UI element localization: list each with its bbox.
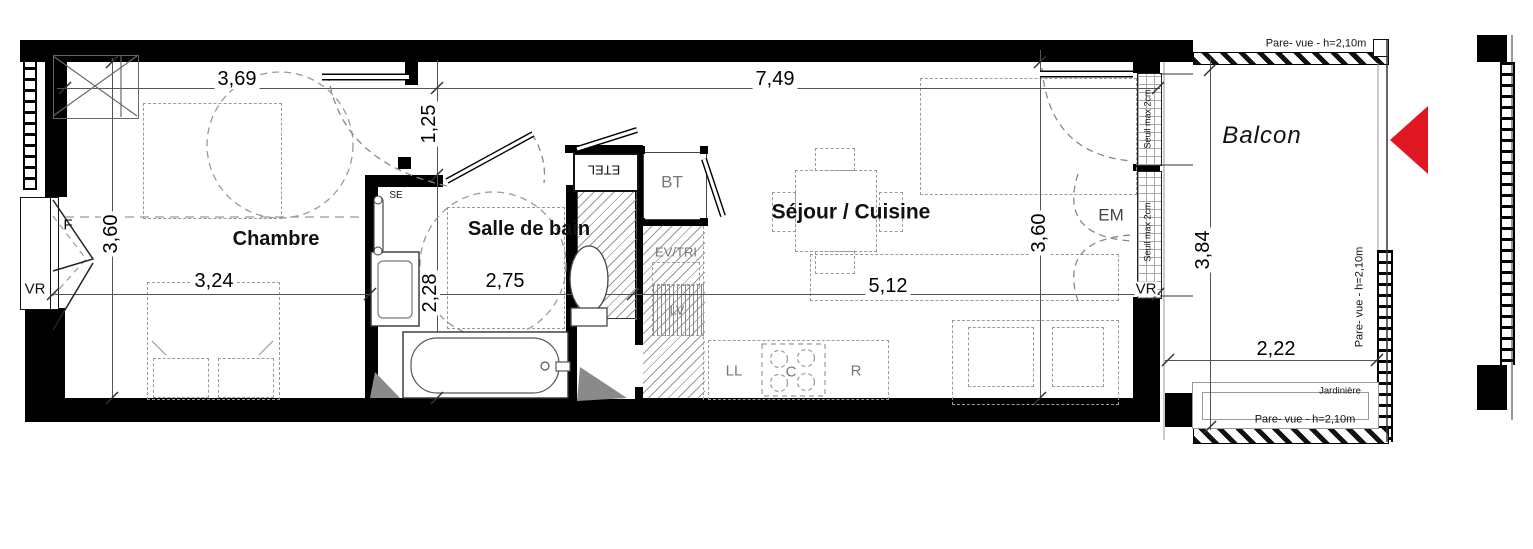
dim-369: 3,69: [215, 69, 260, 89]
bt-pivot-4: [700, 218, 708, 226]
dim-line-balcony-h: [1165, 360, 1378, 361]
wall-bathroom-north: [365, 175, 443, 187]
wall-top: [20, 40, 1193, 62]
dim-125: 1,25: [419, 102, 439, 147]
chambre-clearance-zone: [143, 103, 282, 219]
wall-duct-east-lower: [635, 387, 643, 398]
wardrobe: [53, 55, 139, 119]
dim-line-middle: [50, 294, 1160, 295]
wall-duct-west: [566, 185, 577, 398]
dim-749: 7,49: [753, 69, 798, 89]
bt-pivot-2: [637, 218, 645, 226]
label-ll: LL: [726, 364, 743, 379]
sofa-cushion-2: [1052, 327, 1104, 387]
room-label-salle-de-bain: Salle de bain: [468, 219, 590, 239]
chair-top: [815, 148, 855, 171]
sofa-cushion-1: [968, 327, 1034, 387]
room-label-chambre: Chambre: [233, 229, 320, 249]
wc-duct-hatch: [577, 188, 637, 320]
label-pare-vue-top: Pare- vue - h=2,10m: [1266, 39, 1367, 50]
dim-324: 3,24: [192, 271, 237, 291]
sink-basin: [652, 262, 700, 286]
floor-plan: Chambre Salle de bain Séjour / Cuisine B…: [0, 0, 1533, 549]
kitchen-strip-edge: [703, 226, 704, 400]
label-c: C: [786, 365, 797, 380]
wall-neighbor-bottom: [1477, 365, 1507, 410]
dim-512: 5,12: [866, 276, 911, 296]
neighbor-railing: [1500, 62, 1515, 365]
label-seuil-top: Seuil max 2cm: [1144, 89, 1153, 148]
pare-vue-screen-bottom: [1193, 427, 1389, 444]
wall-bathroom-west: [365, 187, 378, 398]
dim-228: 2,28: [420, 271, 440, 316]
wall-neighbor-top: [1477, 35, 1507, 62]
label-em: EM: [1098, 207, 1124, 224]
bt-pivot-1: [637, 146, 645, 154]
entry-zone: [920, 78, 1137, 195]
label-bt: BT: [661, 174, 683, 191]
label-r: R: [851, 364, 862, 379]
dim-384: 3,84: [1193, 228, 1213, 273]
balcony-railing: [1377, 250, 1393, 442]
room-label-balcon: Balcon: [1222, 124, 1301, 148]
pare-vue-post: [1373, 39, 1389, 57]
dim-222: 2,22: [1254, 339, 1299, 359]
label-seuil-bottom: Seuil max 2cm: [1144, 202, 1153, 261]
washbasin: [371, 252, 419, 326]
party-wall-strip: [23, 45, 37, 190]
wall-right-stub: [1133, 62, 1160, 73]
label-vr-left: VR: [25, 282, 46, 297]
label-window-f: F: [63, 218, 72, 233]
wall-door-stop: [398, 157, 411, 169]
wall-balcony-pier: [1165, 393, 1193, 427]
label-pare-vue-right: Pare- vue - h=2,10m: [1355, 247, 1366, 348]
bed-pillow-right: [218, 358, 274, 398]
bt-pivot-3: [700, 146, 708, 154]
label-jardiniere: Jardinière: [1319, 386, 1361, 396]
shower-area: [577, 318, 635, 399]
north-arrow-icon: [1390, 106, 1428, 174]
label-etel: ETEL: [588, 164, 621, 177]
arc-bathroom-door: [532, 134, 545, 183]
wall-etel-top: [565, 145, 637, 153]
dim-360-right: 3,60: [1029, 211, 1049, 256]
room-label-sejour-cuisine: Séjour / Cuisine: [772, 202, 931, 223]
label-vr-right: VR: [1135, 282, 1158, 297]
label-pare-vue-bottom: Pare- vue - h=2,10m: [1255, 415, 1356, 426]
bed-pillow-left: [153, 358, 209, 398]
wall-sliding-door-stub: [405, 55, 418, 85]
label-lv: LV: [670, 304, 685, 317]
bathtub: [403, 332, 570, 398]
wall-right-lower: [1133, 297, 1160, 398]
label-se: SE: [389, 191, 402, 201]
pare-vue-screen-top: [1193, 52, 1389, 65]
dim-360-left: 3,60: [101, 212, 121, 257]
label-ev-tri: EV/TRI: [655, 246, 697, 259]
dim-275: 2,75: [483, 271, 528, 291]
